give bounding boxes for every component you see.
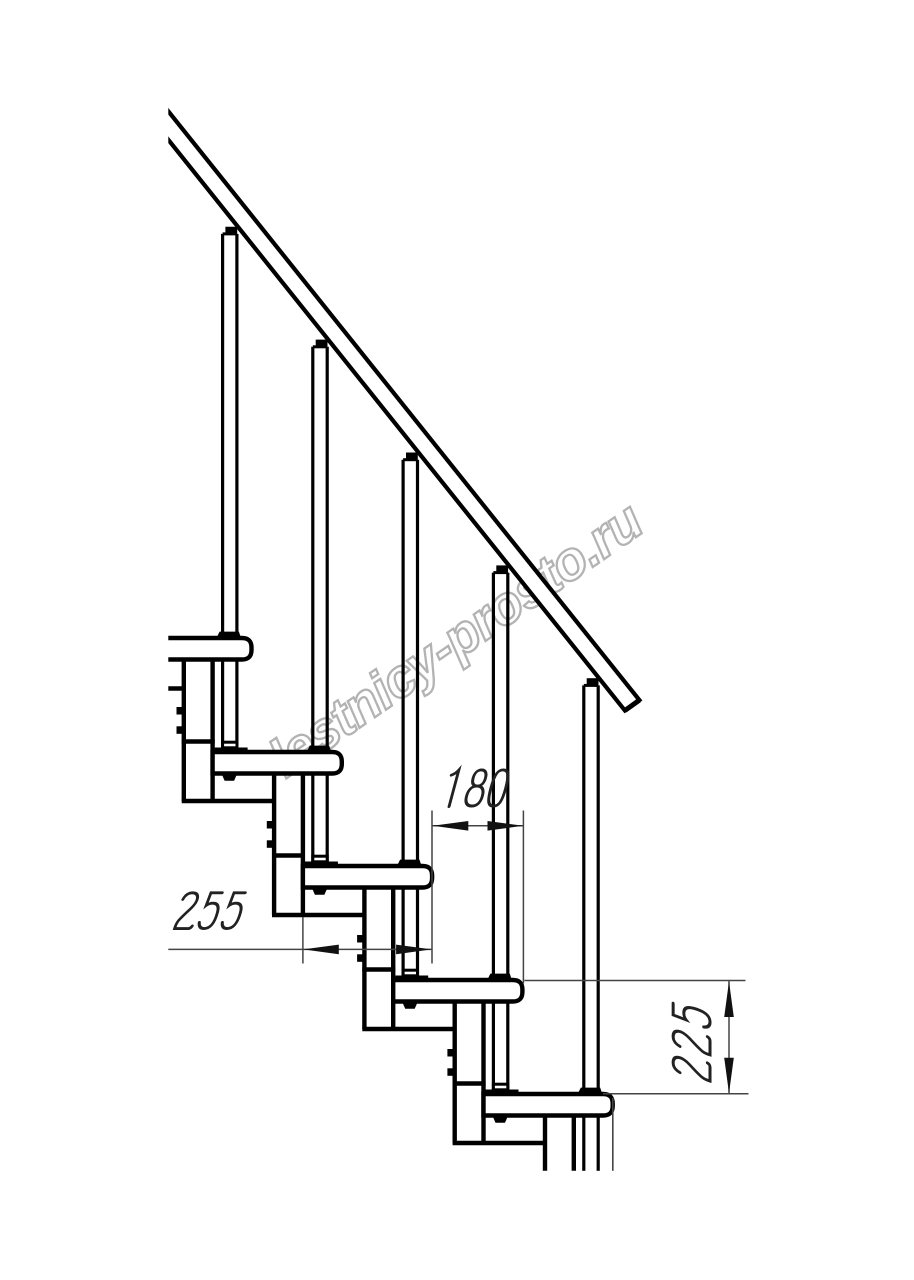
svg-text:lestnicy-prosto.ru: lestnicy-prosto.ru	[258, 490, 653, 789]
